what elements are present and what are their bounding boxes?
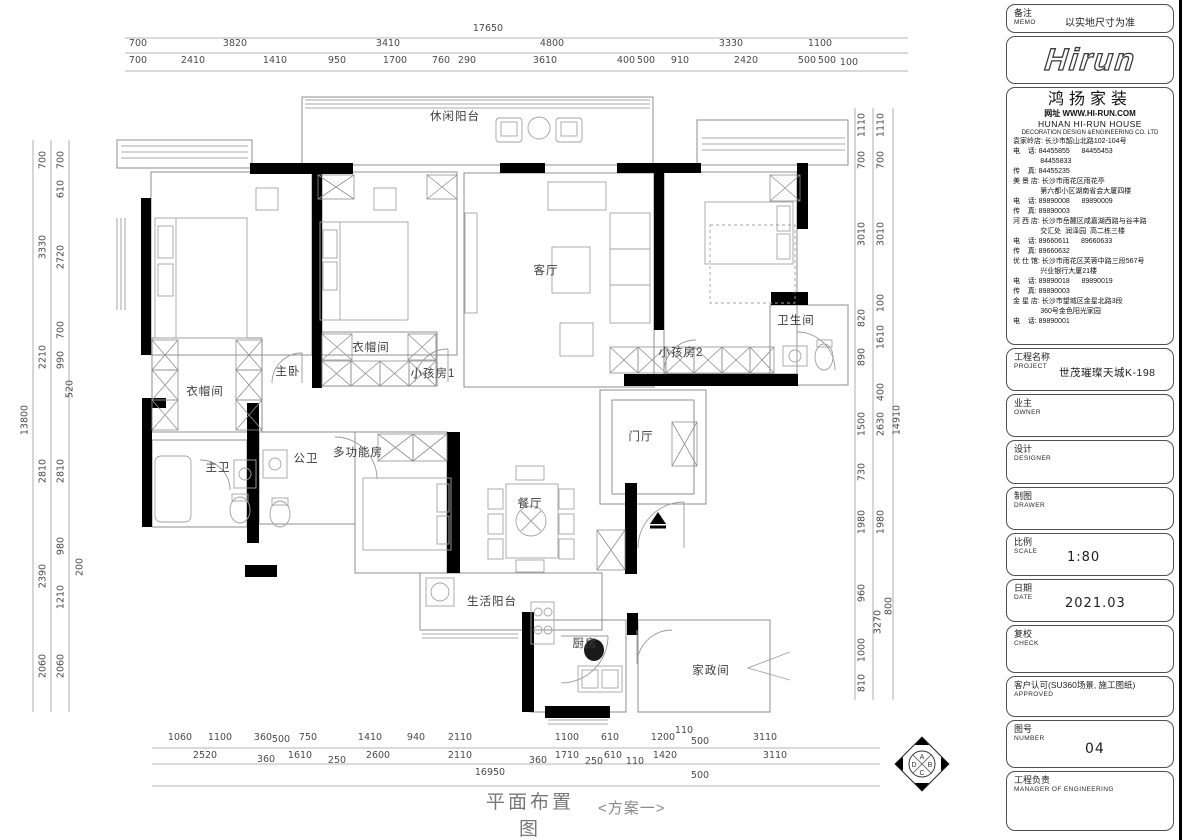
room-label-leisure-balcony: 休闲阳台 — [430, 108, 480, 124]
company-website: 网址 WWW.HI-RUN.COM — [1013, 109, 1167, 119]
dim-bottom-overall: 16950 — [475, 768, 505, 778]
room-outlines — [117, 97, 848, 712]
room-label-living-room: 客厅 — [534, 262, 559, 278]
dim: 1610 — [876, 325, 886, 349]
floor-plan-svg: A B C D — [0, 0, 1005, 840]
project-value: 世茂璀璨天城K-198 — [1059, 365, 1156, 380]
dim: 500 — [272, 735, 290, 745]
dim: 2810 — [56, 459, 66, 483]
dim: 3820 — [223, 39, 247, 49]
dim: 3270 — [873, 610, 883, 634]
dim: 2390 — [38, 564, 48, 588]
dim: 360 — [529, 756, 547, 766]
dim: 980 — [56, 537, 66, 555]
drawing-title: 平面布置图 — [476, 787, 584, 840]
company-line: 交汇处 润泽园 高二栋三楼 — [1013, 227, 1167, 237]
company-name: 鸿扬家装 — [1013, 91, 1167, 109]
company-line: 电 话: 84455855 84455453 — [1013, 147, 1167, 157]
dim: 2810 — [38, 459, 48, 483]
dim: 110 — [675, 726, 693, 736]
company-name-en: HUNAN HI-RUN HOUSE — [1013, 119, 1167, 129]
company-line: 电 话: 89660611 89660633 — [1013, 237, 1167, 247]
dim: 700 — [56, 151, 66, 169]
room-label-public-bath: 公卫 — [294, 450, 319, 466]
company-line: 传 真: 89890003 — [1013, 287, 1167, 297]
dim: 990 — [56, 351, 66, 369]
room-label-laundry-balcony: 生活阳台 — [467, 593, 517, 609]
dim: 610 — [601, 733, 619, 743]
dim: 1110 — [876, 113, 886, 137]
compass-icon: A B C D — [895, 737, 949, 791]
company-line: 河 西 店: 长沙市岳麓区咸嘉湖西路与谷丰路 — [1013, 217, 1167, 227]
company-line: 金 星 店: 长沙市望城区金星北路3段 — [1013, 297, 1167, 307]
dim: 290 — [458, 56, 476, 66]
room-label-cloakroom-1: 衣帽间 — [352, 339, 390, 355]
hirun-logo: Hirun — [1043, 42, 1138, 78]
dim: 2060 — [56, 654, 66, 678]
company-box: 鸿扬家装 网址 WWW.HI-RUN.COM HUNAN HI-RUN HOUS… — [1006, 87, 1174, 345]
dim-top-overall: 17650 — [473, 24, 503, 34]
dim: 360 — [254, 733, 272, 743]
dim: 520 — [65, 380, 75, 398]
field-designer: 设计 DESIGNER — [1006, 440, 1174, 484]
dim: 700 — [38, 151, 48, 169]
memo-value: 以实地尺寸为准 — [1065, 14, 1135, 29]
dim: 750 — [299, 733, 317, 743]
room-label-kitchen: 厨房 — [573, 635, 598, 651]
field-check: 复校 CHECK — [1006, 625, 1174, 673]
company-line: 袁家岭店: 长沙市韶山北路102-104号 — [1013, 137, 1167, 147]
dim: 1100 — [555, 733, 579, 743]
dim: 700 — [857, 151, 867, 169]
dim: 1210 — [56, 585, 66, 609]
logo-box: Hirun — [1006, 36, 1174, 84]
room-label-cloakroom-2: 衣帽间 — [186, 383, 224, 399]
company-line: 传 真: 89660632 — [1013, 247, 1167, 257]
dim: 700 — [129, 56, 147, 66]
dim: 2420 — [734, 56, 758, 66]
field-owner: 业主 OWNER — [1006, 394, 1174, 437]
dim: 1000 — [857, 638, 867, 662]
dim: 100 — [840, 58, 858, 68]
dim: 400 — [617, 56, 635, 66]
window-lines — [117, 100, 845, 724]
room-label-kids-room-1: 小孩房1 — [411, 365, 456, 381]
dim: 250 — [585, 757, 603, 767]
dim: 2520 — [193, 751, 217, 761]
compass-s: C — [919, 770, 924, 777]
dim: 400 — [876, 383, 886, 401]
dim-left-overall: 13800 — [20, 405, 30, 435]
company-line: 第六都小区湖南省会大厦四楼 — [1013, 187, 1167, 197]
drawing-scheme: <方案一> — [598, 797, 666, 818]
room-label-multifunction: 多功能房 — [333, 444, 383, 460]
drawing-sheet: A B C D 17650 700 3820 3410 4800 3330 11… — [0, 0, 1200, 840]
room-label-kids-room-2: 小孩房2 — [659, 344, 704, 360]
dim: 3410 — [376, 39, 400, 49]
dim: 820 — [857, 309, 867, 327]
company-line: 电 话: 89890008 89890009 — [1013, 197, 1167, 207]
room-label-bathroom: 卫生间 — [777, 312, 815, 328]
dim: 4800 — [540, 39, 564, 49]
dim: 3110 — [763, 751, 787, 761]
dim: 360 — [257, 755, 275, 765]
field-scale: 比例 SCALE 1:80 — [1006, 533, 1174, 576]
dim: 3330 — [38, 235, 48, 259]
company-line: 360号金色阳光家园 — [1013, 307, 1167, 317]
dim: 2600 — [366, 751, 390, 761]
sheet-border-line — [1179, 0, 1182, 840]
compass-n: A — [920, 754, 925, 761]
dim: 1100 — [808, 39, 832, 49]
field-manager: 工程负责 MANAGER OF ENGINEERING — [1006, 771, 1174, 831]
dim: 100 — [876, 294, 886, 312]
dim: 890 — [857, 348, 867, 366]
dim: 2110 — [448, 751, 472, 761]
dim: 700 — [56, 321, 66, 339]
dim: 610 — [56, 180, 66, 198]
date-value: 2021.03 — [1065, 596, 1126, 611]
field-number: 图号 NUMBER 04 — [1006, 720, 1174, 768]
dim: 2630 — [876, 412, 886, 436]
room-label-foyer: 门厅 — [629, 428, 654, 444]
dim: 3010 — [876, 222, 886, 246]
dim: 2720 — [56, 245, 66, 269]
dim: 2410 — [181, 56, 205, 66]
dim: 500 — [818, 56, 836, 66]
room-label-dining: 餐厅 — [518, 495, 543, 511]
dim: 1420 — [653, 751, 677, 761]
company-line: 传 真: 84455235 — [1013, 167, 1167, 177]
dim: 3110 — [753, 733, 777, 743]
dim: 1110 — [857, 113, 867, 137]
dim: 1200 — [651, 733, 675, 743]
company-name-en2: DECORATION DESIGN &ENGINEERING CO. LTD — [1013, 129, 1167, 137]
dim: 500 — [691, 771, 709, 781]
dim: 500 — [798, 56, 816, 66]
dim: 1980 — [857, 510, 867, 534]
memo-box: 备注 MEMO 以实地尺寸为准 — [1006, 4, 1174, 33]
company-line: 传 真: 89890003 — [1013, 207, 1167, 217]
company-line: 兴业银行大厦21楼 — [1013, 267, 1167, 277]
dim: 500 — [691, 737, 709, 747]
dim: 940 — [407, 733, 425, 743]
field-project: 工程名称 PROJECT 世茂璀璨天城K-198 — [1006, 348, 1174, 391]
dim: 730 — [857, 463, 867, 481]
dim: 700 — [129, 39, 147, 49]
dim: 1410 — [358, 733, 382, 743]
dim: 3610 — [533, 56, 557, 66]
company-line: 电 话: 89890018 89890019 — [1013, 277, 1167, 287]
room-label-master-bedroom: 主卧 — [276, 363, 301, 379]
dim: 910 — [671, 56, 689, 66]
dim: 2210 — [38, 345, 48, 369]
company-line: 优 仕 馆: 长沙市雨花区芙蓉中路三段567号 — [1013, 257, 1167, 267]
dim: 3330 — [719, 39, 743, 49]
dim: 610 — [604, 751, 622, 761]
dim: 1060 — [168, 733, 192, 743]
dim: 1980 — [876, 510, 886, 534]
dim: 1410 — [263, 56, 287, 66]
compass-w: D — [911, 762, 916, 769]
dim: 1100 — [208, 733, 232, 743]
dim: 1500 — [857, 412, 867, 436]
dim: 1610 — [288, 751, 312, 761]
dim: 950 — [328, 56, 346, 66]
company-line: 84455833 — [1013, 157, 1167, 167]
dim: 110 — [626, 757, 644, 767]
dim: 1710 — [555, 751, 579, 761]
field-date: 日期 DATE 2021.03 — [1006, 579, 1174, 622]
company-line: 美 景 店: 长沙市雨花区雨花亭 — [1013, 177, 1167, 187]
dim: 200 — [75, 558, 85, 576]
dim-right-overall: 14910 — [892, 405, 902, 435]
room-label-master-bath: 主卫 — [206, 459, 231, 475]
dim: 3010 — [857, 222, 867, 246]
dim: 2110 — [448, 733, 472, 743]
number-value: 04 — [1085, 741, 1105, 757]
dim: 500 — [637, 56, 655, 66]
company-line: 电 话: 89890001 — [1013, 317, 1167, 327]
dim: 700 — [876, 151, 886, 169]
dim: 800 — [884, 597, 894, 615]
compass-e: B — [928, 762, 933, 769]
dim: 2060 — [38, 654, 48, 678]
dim: 1700 — [383, 56, 407, 66]
scale-value: 1:80 — [1067, 550, 1100, 565]
dim: 250 — [328, 756, 346, 766]
dim: 960 — [857, 584, 867, 602]
field-drawer: 制图 DRAWER — [1006, 487, 1174, 530]
field-approved: 客户认可(SU360场景, 施工图纸) APPROVED — [1006, 676, 1174, 717]
room-label-housekeeping: 家政间 — [692, 662, 730, 678]
dim: 810 — [857, 674, 867, 692]
dim: 760 — [432, 56, 450, 66]
